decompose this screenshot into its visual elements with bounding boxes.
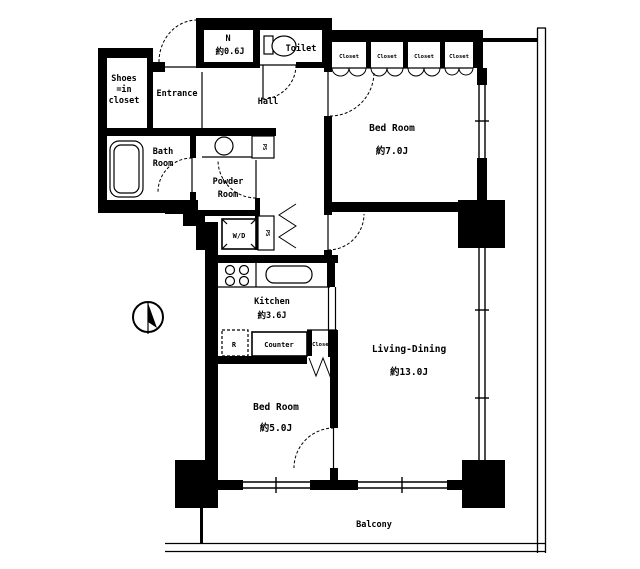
hall-label: Hall xyxy=(258,97,278,107)
pillar-right-middle xyxy=(458,200,505,248)
floorplan-canvas: Shoes =in closet Entrance N 約0.6J Toilet… xyxy=(0,0,640,569)
closet4-curtain xyxy=(445,68,473,75)
storage-n-area: 約0.6J xyxy=(216,46,245,57)
pillar-right-bottom xyxy=(462,460,505,508)
powder-room-label: Powder xyxy=(213,177,244,187)
bathroom-label: Bath xyxy=(153,147,173,157)
counter-label: Counter xyxy=(264,341,294,349)
closet2-label: Closet xyxy=(377,54,397,60)
toilet-label: Toilet xyxy=(286,43,317,54)
washbasin-icon xyxy=(215,137,233,155)
pillar-left-bottom xyxy=(175,460,218,508)
living-dining-label: Living-Dining xyxy=(372,344,447,355)
bedroom5-label: Bed Room xyxy=(253,402,299,413)
floorplan-page: Shoes =in closet Entrance N 約0.6J Toilet… xyxy=(0,0,640,569)
closet1-label: Closet xyxy=(339,54,359,60)
closet3-label: Closet xyxy=(414,54,434,60)
closet2-curtain xyxy=(371,68,403,76)
living-dining-area: 約13.0J xyxy=(390,366,428,378)
bedroom5-area: 約5.0J xyxy=(260,422,292,434)
svg-text:=in: =in xyxy=(116,84,131,95)
balcony-label: Balcony xyxy=(356,520,392,530)
shoes-closet-label: Shoes xyxy=(111,74,137,84)
entrance-label: Entrance xyxy=(157,89,198,99)
closet3-curtain xyxy=(408,68,440,76)
sink-icon xyxy=(266,266,312,283)
svg-text:closet: closet xyxy=(109,96,140,106)
kitchen-area: 約3.6J xyxy=(258,310,287,321)
svg-text:Room: Room xyxy=(153,159,173,169)
stove-icon xyxy=(226,266,249,286)
storage-n-label: N xyxy=(225,34,230,44)
shaft-bottom-label: PS xyxy=(264,230,270,237)
shaft-top-label: PS xyxy=(261,144,267,151)
wd-label: W/D xyxy=(233,232,246,240)
closet1-curtain xyxy=(332,68,366,76)
bedroom7-door-arc xyxy=(330,72,374,116)
kitchen-label: Kitchen xyxy=(254,296,290,307)
bedroom7-label: Bed Room xyxy=(369,123,415,134)
north-compass-icon xyxy=(133,302,163,334)
bedroom5-door-arc xyxy=(294,428,334,468)
closet4-label: Closet xyxy=(449,54,469,60)
kitchen-closet-label: Closet xyxy=(312,342,332,348)
bedroom7-area: 約7.0J xyxy=(376,145,408,157)
entrance-door-arc xyxy=(159,20,197,62)
wd-closet-bifold-door xyxy=(279,204,296,248)
living-door-arc xyxy=(328,214,364,250)
toilet-door-arc xyxy=(262,65,296,99)
svg-text:Room: Room xyxy=(218,190,238,200)
